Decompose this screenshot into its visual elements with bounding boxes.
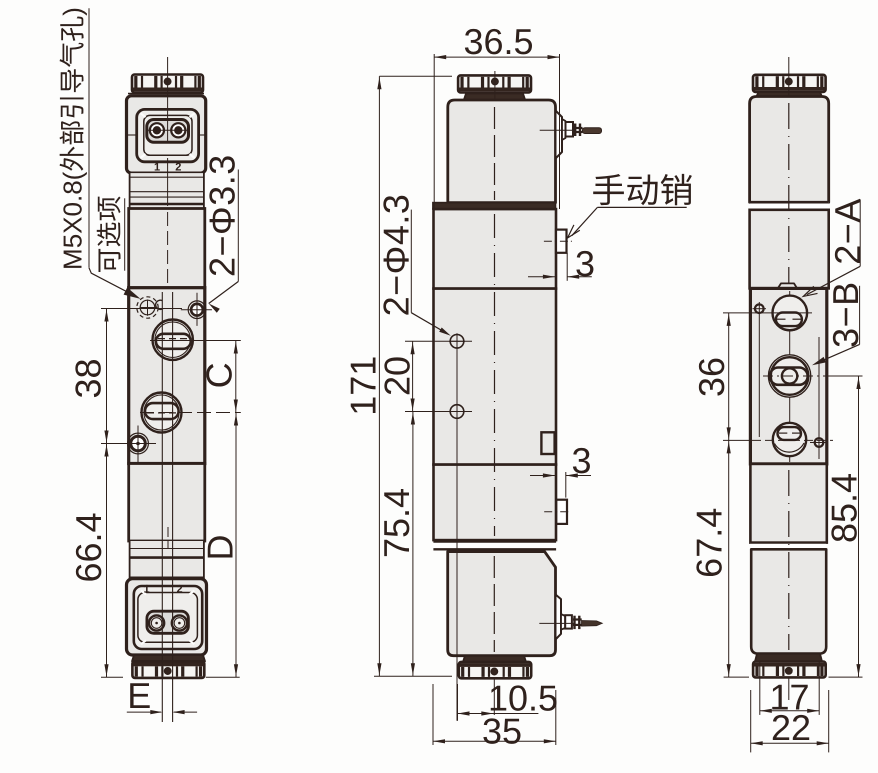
svg-text:2−Φ4.3: 2−Φ4.3: [375, 194, 416, 317]
svg-text:38: 38: [67, 358, 108, 398]
svg-text:可选项: 可选项: [94, 195, 124, 273]
svg-text:2: 2: [175, 161, 181, 173]
svg-text:2: 2: [176, 583, 182, 595]
svg-text:3: 3: [571, 440, 591, 481]
svg-text:66.4: 66.4: [68, 512, 109, 582]
svg-text:67.4: 67.4: [688, 508, 729, 578]
svg-text:E: E: [127, 675, 151, 716]
svg-text:1: 1: [143, 583, 149, 595]
svg-text:1: 1: [154, 161, 160, 173]
svg-text:C: C: [199, 362, 240, 388]
svg-text:36: 36: [691, 357, 732, 397]
svg-text:D: D: [199, 535, 240, 561]
svg-text:36.5: 36.5: [463, 21, 533, 62]
svg-text:2−A: 2−A: [827, 198, 868, 265]
svg-text:22: 22: [771, 707, 811, 748]
svg-text:2−Φ3.3: 2−Φ3.3: [201, 154, 242, 277]
svg-text:M5X0.8(外部引导气孔): M5X0.8(外部引导气孔): [57, 7, 87, 270]
svg-text:20: 20: [376, 356, 417, 396]
svg-text:35: 35: [482, 710, 522, 751]
svg-text:手动销: 手动销: [592, 173, 694, 211]
svg-text:85.4: 85.4: [823, 473, 864, 543]
svg-text:75.4: 75.4: [376, 488, 417, 558]
svg-text:3: 3: [575, 243, 595, 284]
